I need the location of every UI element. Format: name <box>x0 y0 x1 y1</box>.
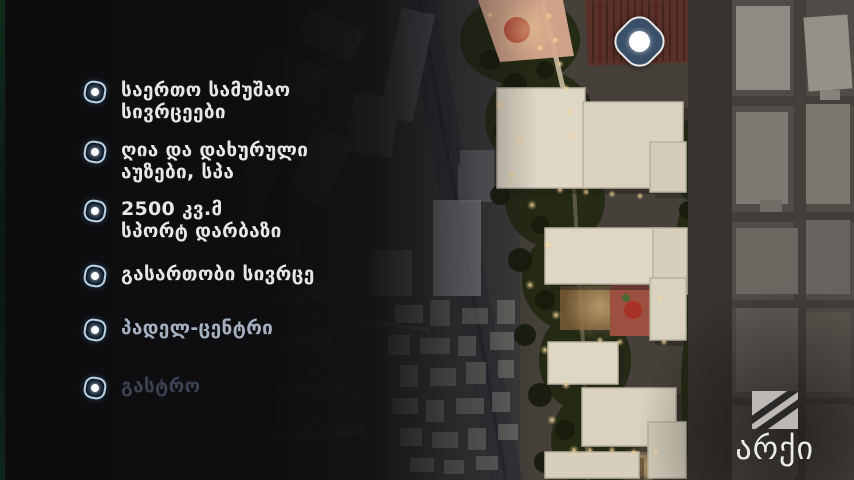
list-item: გასართობი სივრცე <box>84 264 315 287</box>
map-pin-center-dot <box>629 31 650 52</box>
list-item-label: ღია და დახურული აუზები, სპა <box>121 140 308 183</box>
feature-list: საერთო სამუშაო სივრცეები ღია და დახურული… <box>84 0 444 480</box>
map-pin-marker <box>616 18 663 65</box>
bullet-marker-icon <box>82 79 107 104</box>
list-item: საერთო სამუშაო სივრცეები <box>84 80 290 123</box>
list-item-line: სივრცეები <box>121 102 290 124</box>
broadcast-frame: საერთო სამუშაო სივრცეები ღია და დახურული… <box>0 0 854 480</box>
list-item-line: აუზები, სპა <box>121 162 308 184</box>
bullet-marker-icon <box>82 139 107 164</box>
list-item: გასტრო <box>84 376 200 399</box>
list-item-label: გასართობი სივრცე <box>121 264 315 286</box>
list-item: ღია და დახურული აუზები, სპა <box>84 140 308 183</box>
bullet-marker-icon <box>82 198 107 223</box>
list-item-line: სპორტ დარბაზი <box>121 221 282 243</box>
channel-logo-wordmark: არქი <box>735 432 814 464</box>
list-item-line: ღია და დახურული <box>121 140 308 162</box>
list-item-label: გასტრო <box>121 376 200 398</box>
list-item-line: 2500 კვ.მ <box>121 199 282 221</box>
screen-edge-tint <box>0 0 5 480</box>
list-item-label: პადელ-ცენტრი <box>121 318 273 340</box>
list-item-line: გასტრო <box>121 376 200 398</box>
list-item-label: საერთო სამუშაო სივრცეები <box>121 80 290 123</box>
archi-stripes-logo-icon <box>752 391 798 429</box>
list-item-line: საერთო სამუშაო <box>121 80 290 102</box>
list-item-label: 2500 კვ.მ სპორტ დარბაზი <box>121 199 282 242</box>
bullet-marker-icon <box>82 263 107 288</box>
list-item-line: გასართობი სივრცე <box>121 264 315 286</box>
list-item: 2500 კვ.მ სპორტ დარბაზი <box>84 199 282 242</box>
bullet-marker-icon <box>82 375 107 400</box>
list-item: პადელ-ცენტრი <box>84 318 273 341</box>
channel-logo: არქი <box>735 391 814 464</box>
bullet-marker-icon <box>82 317 107 342</box>
list-item-line: პადელ-ცენტრი <box>121 318 273 340</box>
